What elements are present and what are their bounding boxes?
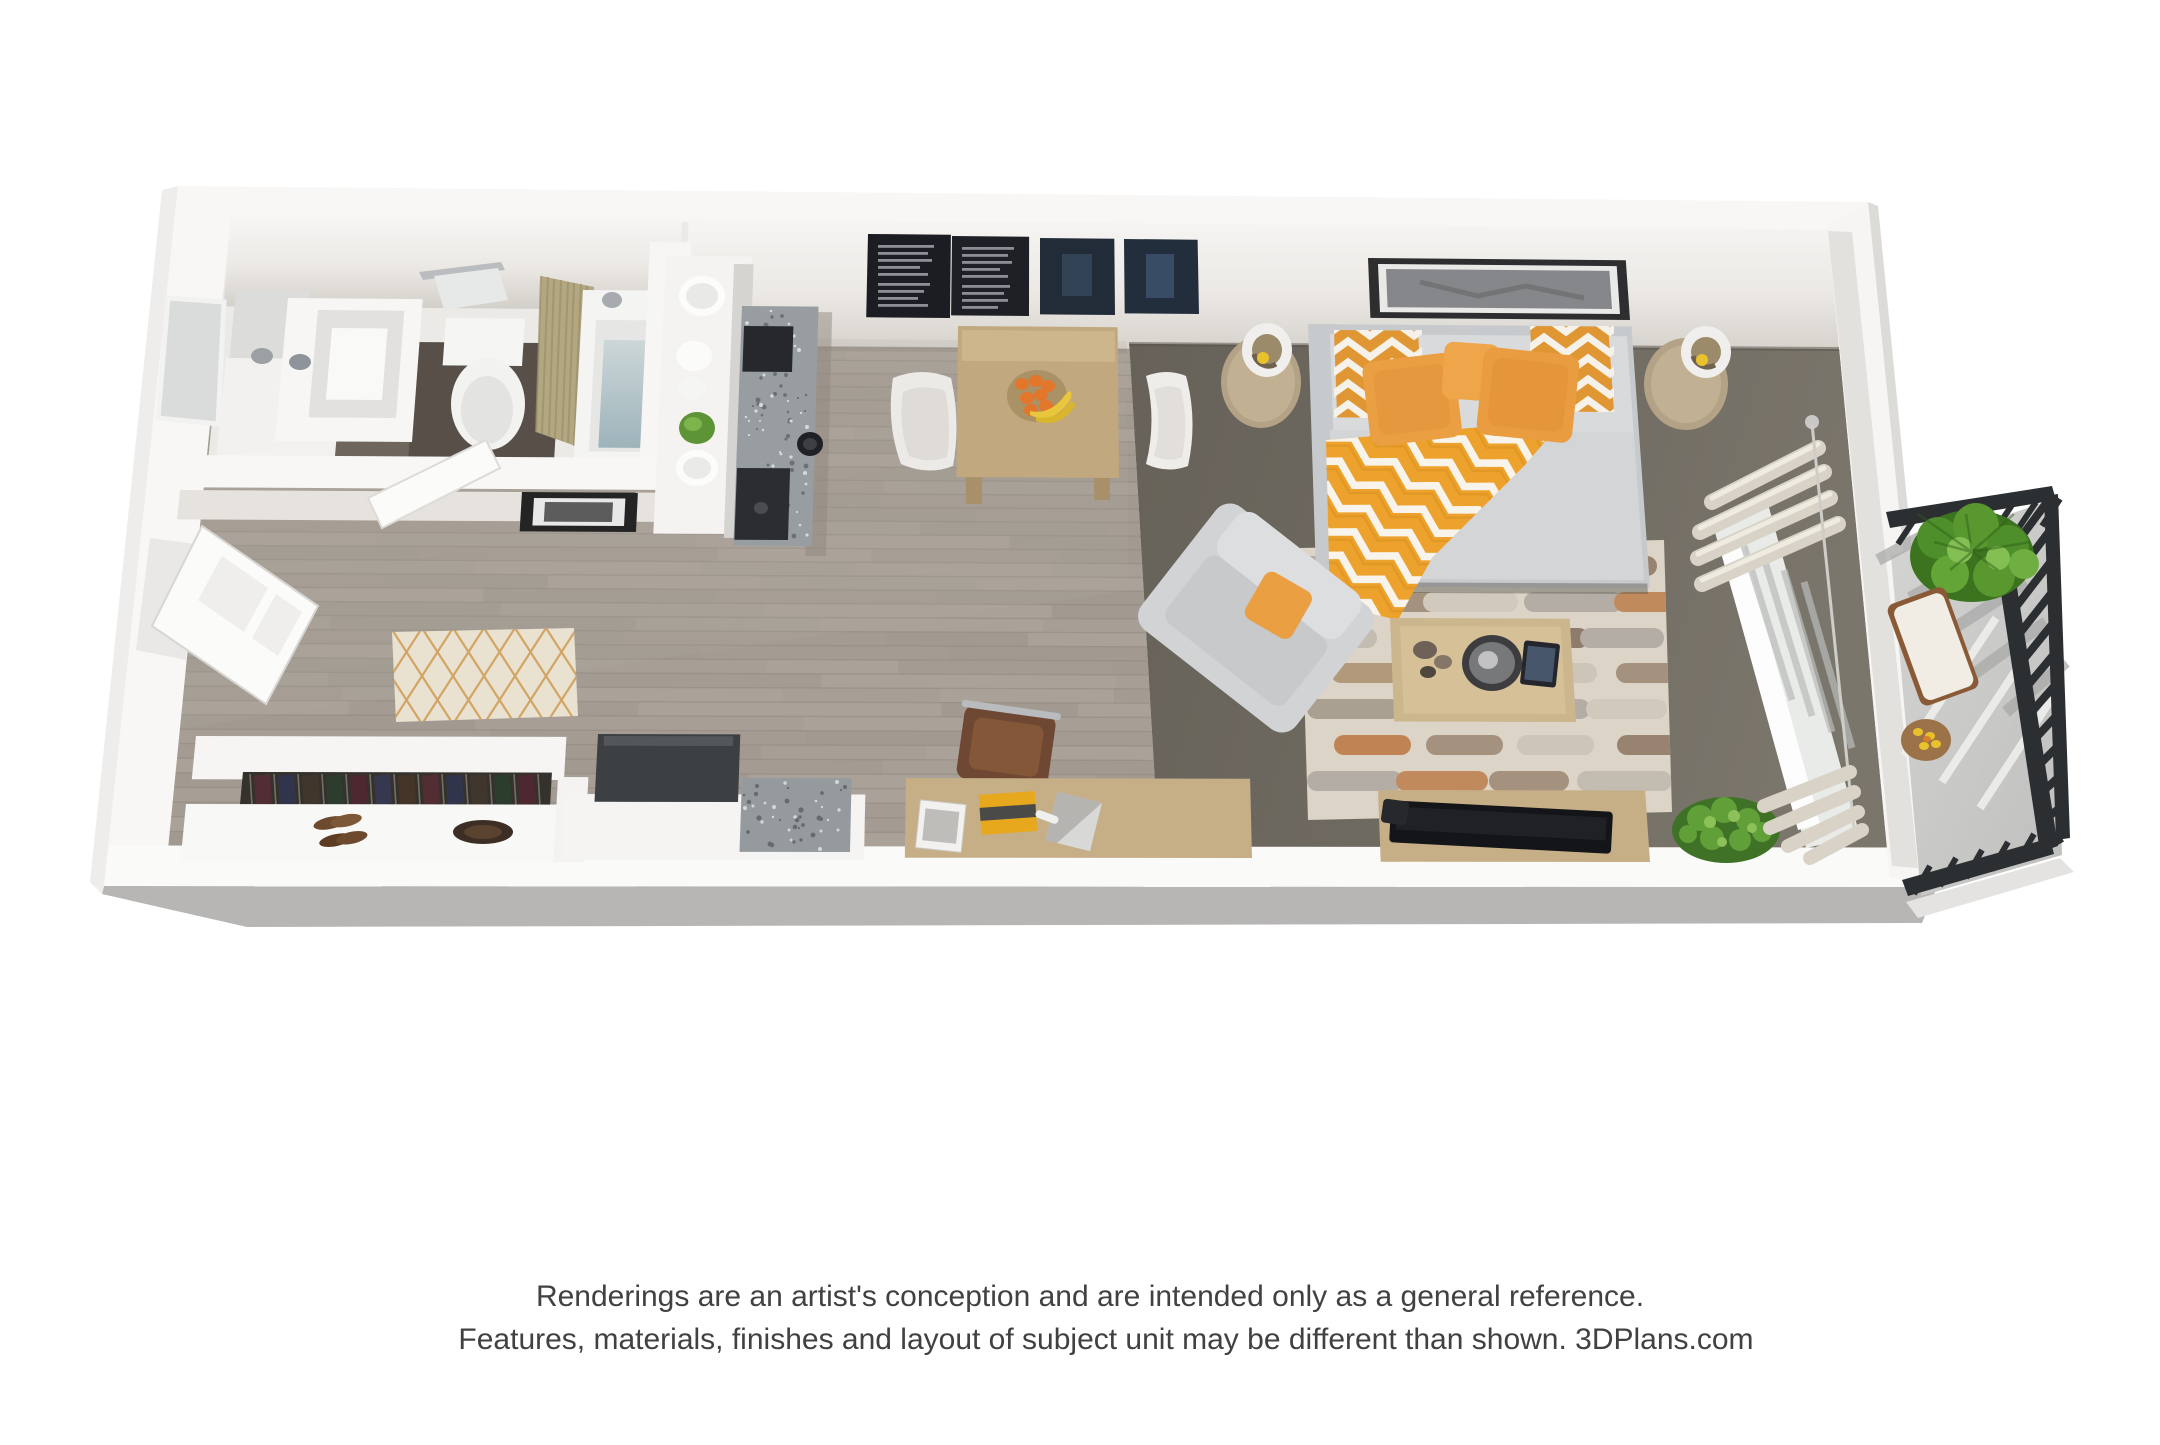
svg-text:Renderings are an artist's con: Renderings are an artist's conception an… (536, 1280, 1644, 1313)
svg-text:Features, materials, finishes: Features, materials, finishes and layout… (458, 1323, 1753, 1356)
